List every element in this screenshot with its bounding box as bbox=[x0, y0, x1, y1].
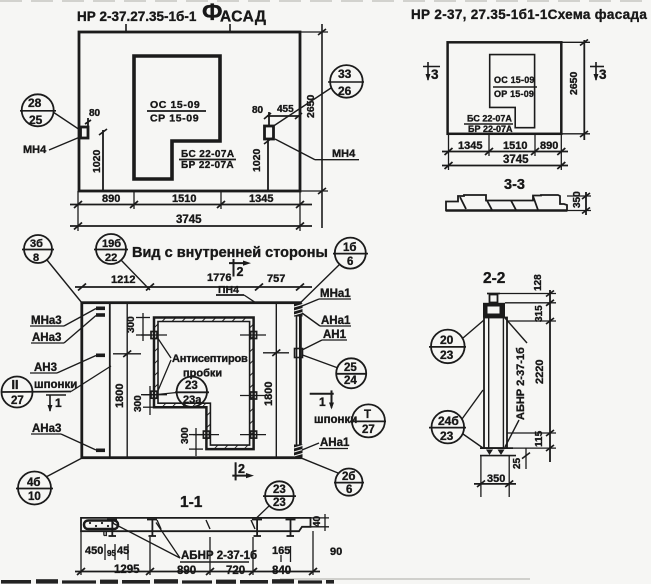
svg-text:2б: 2б bbox=[342, 471, 356, 483]
svg-text:890: 890 bbox=[102, 193, 120, 205]
svg-text:1: 1 bbox=[55, 396, 62, 410]
svg-text:8: 8 bbox=[33, 252, 39, 264]
svg-text:АБНР 2-37-1б: АБНР 2-37-1б bbox=[181, 550, 257, 562]
svg-text:1: 1 bbox=[319, 395, 326, 409]
svg-text:4б: 4б bbox=[27, 477, 41, 489]
svg-text:840: 840 bbox=[272, 565, 291, 577]
svg-text:128: 128 bbox=[533, 274, 544, 291]
svg-text:ОС 15-09: ОС 15-09 bbox=[150, 99, 200, 111]
svg-text:2: 2 bbox=[237, 265, 244, 279]
svg-text:19б: 19б bbox=[102, 238, 121, 250]
svg-text:БР 22-07А: БР 22-07А bbox=[468, 124, 513, 134]
svg-text:450: 450 bbox=[85, 545, 103, 557]
svg-text:25: 25 bbox=[512, 457, 523, 469]
svg-text:24б: 24б bbox=[438, 414, 459, 428]
svg-text:3б: 3б bbox=[30, 238, 43, 250]
svg-text:2220: 2220 bbox=[534, 360, 546, 384]
svg-text:БС 22-07А: БС 22-07А bbox=[467, 114, 512, 124]
svg-text:1212: 1212 bbox=[111, 274, 135, 286]
svg-text:АНа1: АНа1 bbox=[320, 437, 350, 449]
svg-text:АНа3: АНа3 bbox=[32, 423, 61, 435]
svg-text:3745: 3745 bbox=[176, 214, 202, 226]
svg-text:300: 300 bbox=[133, 395, 144, 412]
svg-text:23: 23 bbox=[273, 484, 286, 496]
svg-text:26: 26 bbox=[338, 84, 352, 98]
svg-text:300: 300 bbox=[126, 316, 137, 333]
svg-text:80: 80 bbox=[89, 108, 101, 119]
svg-text:350: 350 bbox=[487, 473, 505, 485]
svg-text:МН4: МН4 bbox=[23, 144, 47, 156]
svg-text:315: 315 bbox=[534, 305, 545, 322]
svg-text:2-2: 2-2 bbox=[483, 270, 505, 287]
svg-text:БР 22-07А: БР 22-07А bbox=[181, 160, 234, 171]
svg-text:Вид с внутренней стороны: Вид с внутренней стороны bbox=[132, 245, 328, 261]
svg-text:40: 40 bbox=[312, 515, 323, 527]
svg-text:28: 28 bbox=[28, 96, 42, 110]
svg-text:115: 115 bbox=[534, 430, 545, 447]
svg-text:3-3: 3-3 bbox=[504, 177, 525, 193]
svg-text:1510: 1510 bbox=[172, 193, 196, 205]
svg-text:23: 23 bbox=[440, 348, 454, 362]
svg-text:II: II bbox=[12, 378, 19, 392]
svg-text:шпонки: шпонки bbox=[34, 379, 77, 391]
svg-text:1020: 1020 bbox=[91, 149, 103, 173]
svg-text:ОР 15-09: ОР 15-09 bbox=[494, 89, 534, 99]
svg-text:1345: 1345 bbox=[458, 140, 482, 152]
svg-text:Т: Т bbox=[364, 409, 371, 421]
svg-text:АН3: АН3 bbox=[34, 362, 57, 374]
svg-text:СР 15-09: СР 15-09 bbox=[150, 113, 199, 125]
svg-text:ОС 15-09: ОС 15-09 bbox=[494, 75, 535, 85]
svg-text:27: 27 bbox=[362, 424, 375, 436]
svg-text:АБНР 2-37-1б: АБНР 2-37-1б bbox=[515, 347, 527, 420]
svg-text:3: 3 bbox=[431, 67, 439, 82]
svg-text:757: 757 bbox=[267, 273, 285, 285]
svg-text:20: 20 bbox=[440, 333, 454, 347]
svg-text:АСАД: АСАД bbox=[220, 9, 266, 26]
svg-text:890: 890 bbox=[177, 565, 196, 577]
svg-text:3: 3 bbox=[599, 67, 607, 82]
svg-text:НР 2-37, 27.35-1б1-1Схема фаса: НР 2-37, 27.35-1б1-1Схема фасада bbox=[411, 7, 647, 22]
svg-text:90: 90 bbox=[330, 546, 342, 558]
svg-text:25: 25 bbox=[29, 113, 43, 127]
svg-text:АНа1: АНа1 bbox=[321, 315, 351, 327]
svg-text:10: 10 bbox=[28, 491, 41, 503]
svg-text:АНа3: АНа3 bbox=[32, 332, 61, 344]
svg-text:33: 33 bbox=[338, 67, 352, 81]
svg-text:u: u bbox=[103, 531, 107, 538]
svg-text:1б: 1б bbox=[343, 242, 357, 254]
svg-text:МН4: МН4 bbox=[332, 148, 356, 160]
svg-text:6: 6 bbox=[346, 484, 352, 496]
svg-text:Антисептиров: Антисептиров bbox=[172, 353, 248, 365]
svg-text:1776: 1776 bbox=[207, 272, 231, 284]
svg-text:350: 350 bbox=[572, 191, 583, 208]
svg-text:1345: 1345 bbox=[249, 193, 273, 205]
svg-text:23: 23 bbox=[273, 497, 286, 509]
svg-text:1800: 1800 bbox=[114, 384, 126, 408]
svg-text:НР 2-37.27.35-1б-1: НР 2-37.27.35-1б-1 bbox=[77, 9, 197, 24]
svg-text:27: 27 bbox=[11, 395, 24, 407]
svg-text:25: 25 bbox=[344, 362, 357, 374]
svg-text:1800: 1800 bbox=[263, 382, 275, 406]
svg-text:2650: 2650 bbox=[568, 71, 580, 95]
svg-text:23а: 23а bbox=[183, 394, 202, 406]
svg-text:МНа3: МНа3 bbox=[31, 315, 62, 327]
svg-text:720: 720 bbox=[226, 565, 245, 577]
svg-text:1295: 1295 bbox=[114, 564, 140, 576]
svg-text:22: 22 bbox=[105, 252, 117, 264]
svg-text:МНа1: МНа1 bbox=[320, 288, 351, 300]
svg-text:890: 890 bbox=[540, 140, 558, 152]
svg-text:шпонки: шпонки bbox=[314, 414, 357, 426]
svg-text:300: 300 bbox=[180, 427, 191, 444]
svg-text:3745: 3745 bbox=[503, 154, 529, 166]
svg-text:АН1: АН1 bbox=[323, 329, 347, 341]
svg-text:1510: 1510 bbox=[503, 140, 527, 152]
svg-text:2: 2 bbox=[238, 462, 245, 476]
svg-text:24: 24 bbox=[344, 375, 357, 387]
svg-text:1020: 1020 bbox=[251, 148, 263, 172]
svg-text:БС 22-07А: БС 22-07А bbox=[181, 149, 234, 160]
svg-text:80: 80 bbox=[252, 105, 264, 116]
svg-text:6: 6 bbox=[347, 256, 353, 268]
svg-text:23: 23 bbox=[185, 380, 198, 392]
svg-text:1-1: 1-1 bbox=[180, 494, 203, 511]
svg-text:23: 23 bbox=[440, 429, 454, 443]
